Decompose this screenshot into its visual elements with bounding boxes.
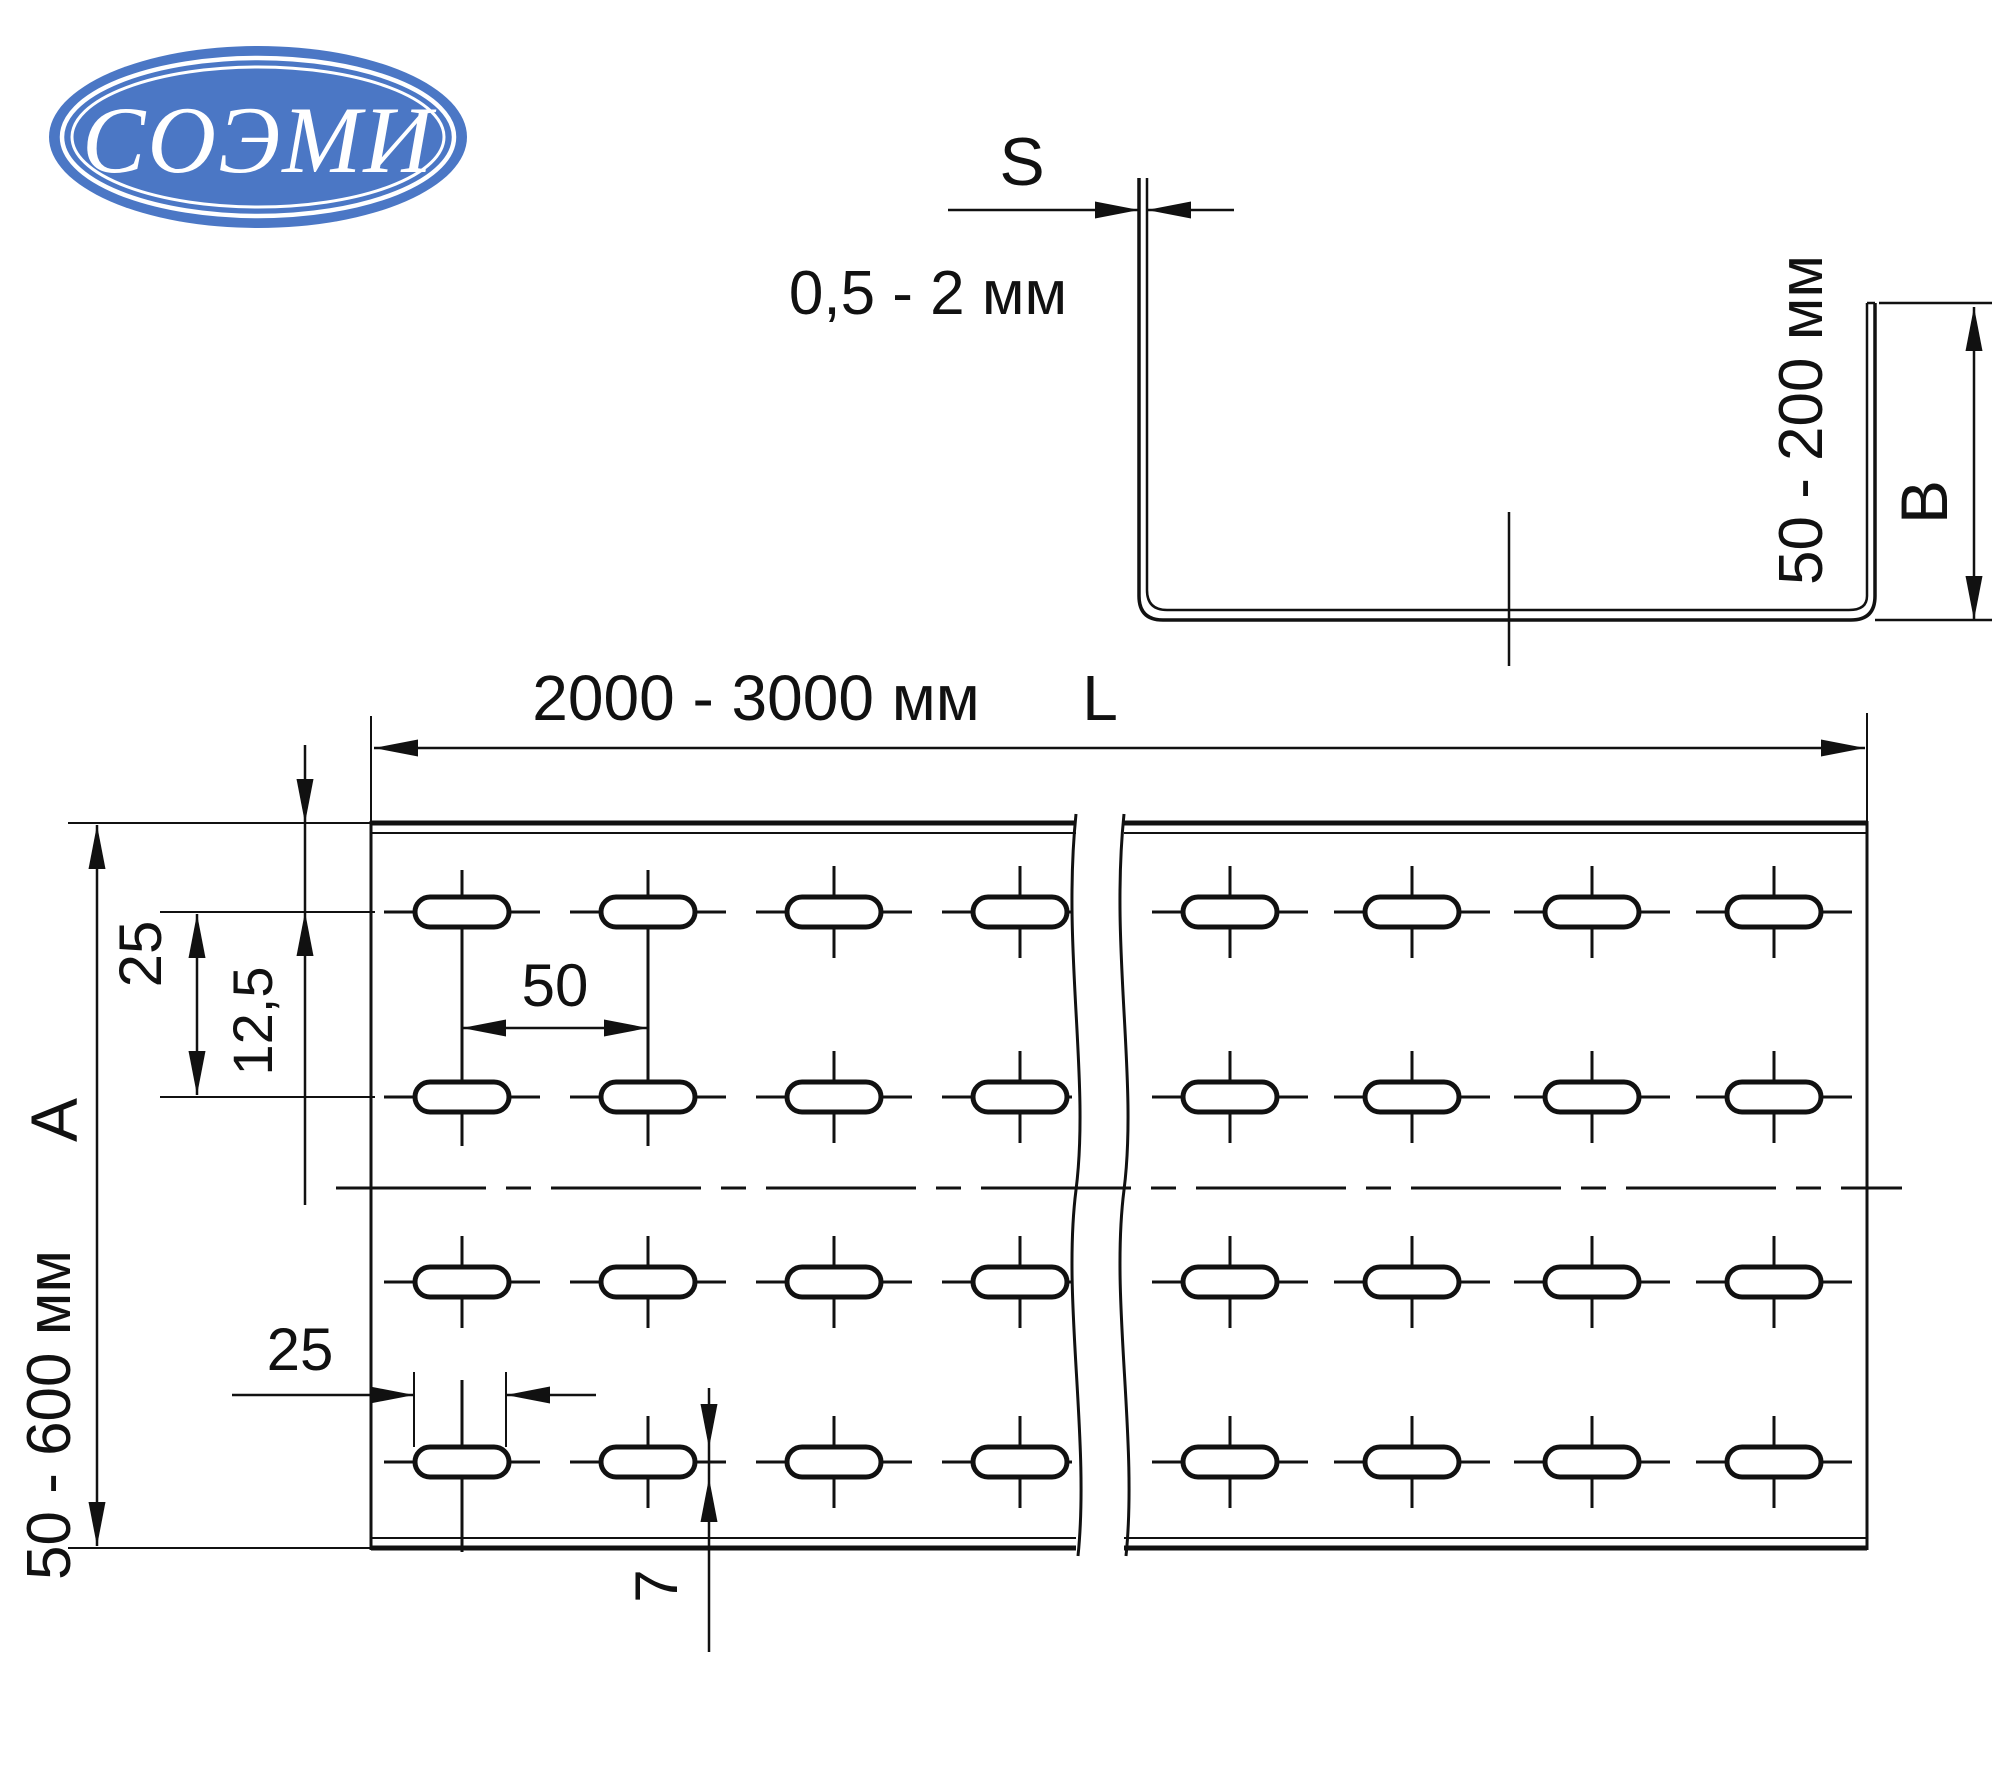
slot-outline: [1545, 1082, 1639, 1112]
slot-hole: [1696, 866, 1852, 958]
slot-hole: [756, 1236, 912, 1328]
slot-outline: [1365, 1082, 1459, 1112]
arrowhead-left: [506, 1387, 550, 1404]
slot-hole: [942, 1051, 1072, 1143]
slot-outline: [1365, 1447, 1459, 1477]
drawing-page: СОЭМИ: [0, 0, 2000, 1771]
slot-hole: [1696, 1416, 1852, 1508]
slot-outline: [1183, 1082, 1277, 1112]
company-logo-text: СОЭМИ: [82, 87, 436, 193]
slot-hole: [384, 1082, 540, 1112]
arrowhead-right: [370, 1387, 414, 1404]
slot-hole: [570, 1416, 726, 1508]
slot-outline: [1545, 1267, 1639, 1297]
slot-hole: [756, 1051, 912, 1143]
slot-hole: [570, 897, 726, 927]
slot-outline: [415, 897, 509, 927]
thickness-range-label: 0,5 - 2 мм: [789, 259, 1067, 328]
slot-hole: [1152, 866, 1308, 958]
arrowhead-up: [189, 914, 206, 958]
channel-inner-profile: [1147, 178, 1867, 610]
slot-hole: [1696, 1236, 1852, 1328]
slot-outline: [415, 1447, 509, 1477]
slot-outline: [601, 1082, 695, 1112]
slot-hole: [1152, 1236, 1308, 1328]
slot-hole: [1514, 1236, 1670, 1328]
arrowhead-down: [297, 779, 314, 823]
slot-outline: [973, 1267, 1067, 1297]
slot-outline: [601, 1267, 695, 1297]
slot-outline: [973, 897, 1067, 927]
width-range-label: 50 - 600 мм: [15, 1250, 84, 1580]
slot-hole: [384, 1236, 540, 1328]
slot-hole: [570, 1236, 726, 1328]
arrowhead-right: [1821, 740, 1865, 757]
slot-hole: [1334, 1416, 1490, 1508]
arrowhead-down: [189, 1051, 206, 1095]
arrowhead-right: [1095, 202, 1139, 219]
slot-outline: [1183, 897, 1277, 927]
slot-hole: [942, 866, 1072, 958]
slot-width-label: 7: [623, 1569, 690, 1602]
arrowhead-up: [89, 825, 106, 869]
arrowhead-right: [604, 1020, 648, 1037]
slot-outline: [415, 1082, 509, 1112]
slot-outline: [787, 897, 881, 927]
company-logo: СОЭМИ: [49, 46, 467, 228]
break-line-left: [1072, 814, 1081, 1556]
arrowhead-left: [1147, 202, 1191, 219]
slot-outline: [1727, 1447, 1821, 1477]
length-range-label: 2000 - 3000 мм: [532, 662, 979, 734]
slot-outline: [787, 1082, 881, 1112]
channel-outer-profile: [1139, 178, 1875, 620]
labels: S 0,5 - 2 мм 50 - 200 мм B 2000 - 3000 м…: [15, 124, 1961, 1603]
arrowhead-down: [89, 1502, 106, 1546]
height-range-label: 50 - 200 мм: [1767, 255, 1836, 585]
slot-hole: [1514, 866, 1670, 958]
slot-hole: [942, 1416, 1072, 1508]
arrowhead-up: [701, 1478, 718, 1522]
slot-hole: [756, 1416, 912, 1508]
break-line-right: [1120, 814, 1129, 1556]
slot-outline: [1365, 897, 1459, 927]
slot-hole: [570, 1082, 726, 1112]
arrowhead-left: [374, 740, 418, 757]
slot-hole: [1152, 1416, 1308, 1508]
slot-hole: [384, 1380, 540, 1552]
slot-outline: [973, 1082, 1067, 1112]
length-letter-label: L: [1082, 662, 1118, 734]
slot-hole: [384, 897, 540, 927]
slot-outline: [415, 1267, 509, 1297]
slot-outline: [1365, 1267, 1459, 1297]
slot-length-label: 25: [267, 1316, 334, 1383]
slot-hole: [1514, 1416, 1670, 1508]
slot-outline: [787, 1447, 881, 1477]
arrowhead-down: [1966, 576, 1983, 620]
width-letter-label: A: [17, 1098, 91, 1142]
arrowhead-down: [701, 1404, 718, 1448]
cable-tray-technical-drawing: СОЭМИ: [0, 0, 2000, 1771]
slot-outline: [1183, 1267, 1277, 1297]
hole-pitch-y-label: 25: [107, 921, 174, 988]
slot-outline: [1545, 1447, 1639, 1477]
slot-outline: [787, 1267, 881, 1297]
height-letter-label: B: [1887, 480, 1961, 524]
slot-outline: [1183, 1447, 1277, 1477]
thickness-letter-label: S: [999, 124, 1044, 200]
plan-view: [68, 713, 1902, 1652]
slot-hole: [1152, 1051, 1308, 1143]
hole-pitch-x-label: 50: [522, 952, 589, 1019]
edge-offset-label: 12,5: [221, 967, 284, 1076]
arrowhead-up: [1966, 307, 1983, 351]
perforation-slots: [384, 866, 1852, 1552]
slot-outline: [1727, 1082, 1821, 1112]
slot-hole: [1696, 1051, 1852, 1143]
slot-hole: [1514, 1051, 1670, 1143]
slot-hole: [1334, 1051, 1490, 1143]
slot-outline: [601, 897, 695, 927]
slot-hole: [756, 866, 912, 958]
arrowhead-up: [297, 912, 314, 956]
slot-hole: [1334, 866, 1490, 958]
slot-outline: [1727, 897, 1821, 927]
slot-outline: [1545, 897, 1639, 927]
slot-hole: [942, 1236, 1072, 1328]
slot-outline: [601, 1447, 695, 1477]
slot-outline: [973, 1447, 1067, 1477]
slot-outline: [1727, 1267, 1821, 1297]
arrowhead-left: [462, 1020, 506, 1037]
dimension-arrowheads: [89, 202, 1983, 1547]
slot-hole: [1334, 1236, 1490, 1328]
